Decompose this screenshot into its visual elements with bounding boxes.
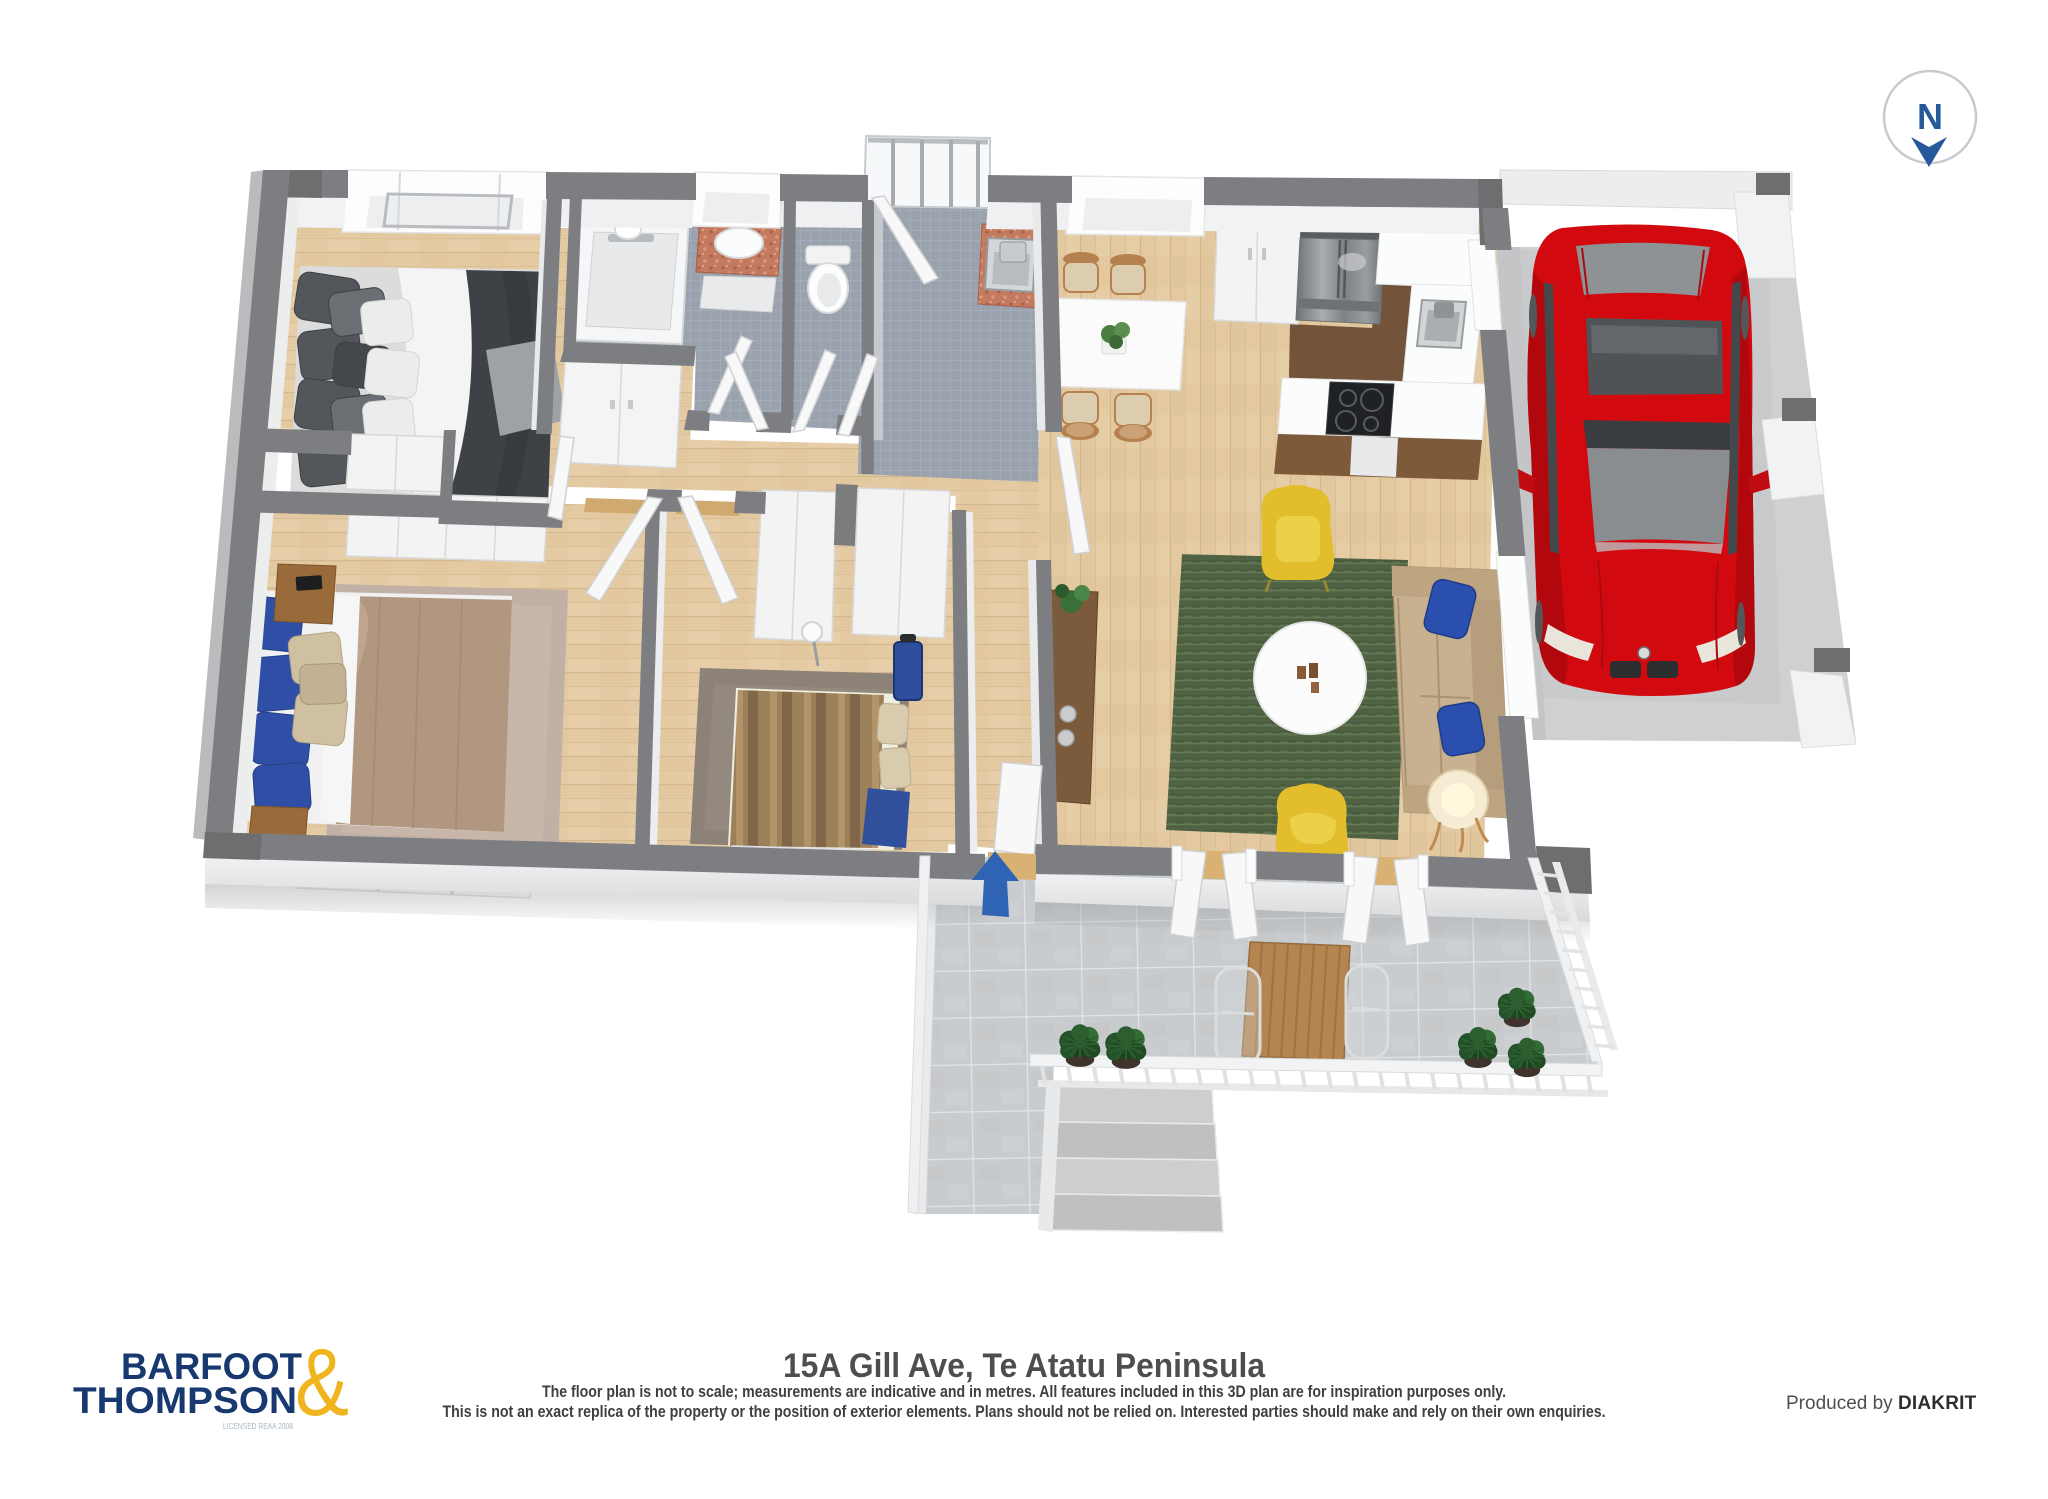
svg-text:The floor plan is not to scale: The floor plan is not to scale; measurem… xyxy=(542,1382,1506,1401)
svg-text:This is not an exact replica o: This is not an exact replica of the prop… xyxy=(443,1402,1606,1421)
svg-text:THOMPSON: THOMPSON xyxy=(73,1380,297,1421)
svg-text:15A Gill Ave, Te Atatu Peninsu: 15A Gill Ave, Te Atatu Peninsula xyxy=(783,1347,1266,1385)
svg-text:LICENSED REAA 2008: LICENSED REAA 2008 xyxy=(223,1421,293,1431)
svg-text:&: & xyxy=(295,1329,349,1436)
svg-text:Produced by DIAKRIT: Produced by DIAKRIT xyxy=(1786,1393,1977,1414)
svg-text:N: N xyxy=(1917,96,1943,137)
